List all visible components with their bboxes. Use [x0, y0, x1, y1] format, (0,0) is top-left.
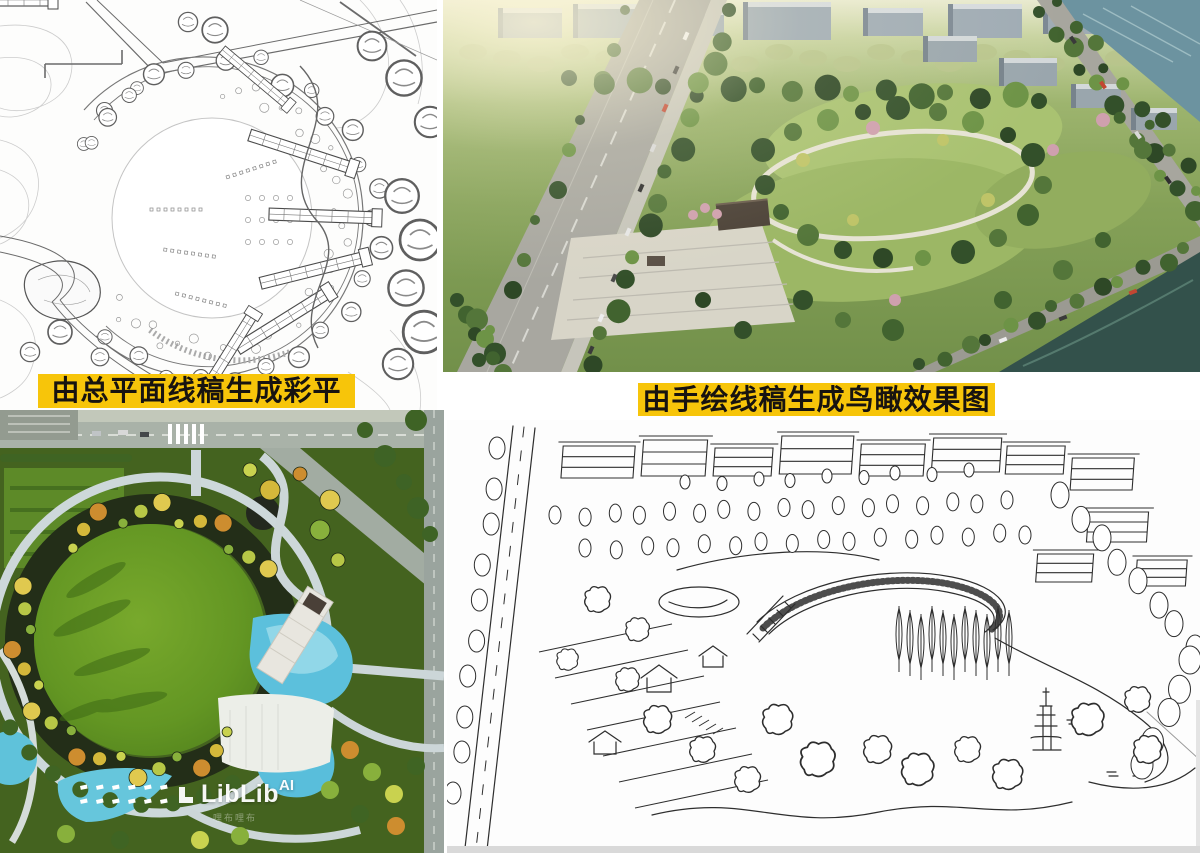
panel-hand-drawn-sketch	[447, 420, 1200, 853]
watermark-brand: LibLibAI	[201, 780, 294, 809]
right-edge-strip	[1196, 700, 1200, 846]
caption-banner-plan-to-color: 由总平面线稿生成彩平	[38, 374, 355, 408]
sun-haze	[443, 0, 1200, 372]
watermark-subtext: 哩布哩布	[213, 811, 257, 824]
collage-canvas: 由总平面线稿生成彩平 由手绘线稿生成鸟瞰效果图	[0, 0, 1200, 853]
hand-sketch	[447, 420, 1200, 853]
bottom-strip	[447, 846, 1200, 853]
liblib-watermark: LibLibAI 哩布哩布	[150, 780, 320, 824]
caption-banner-sketch-to-render: 由手绘线稿生成鸟瞰效果图	[638, 383, 995, 416]
panel-color-site-plan-render: LibLibAI 哩布哩布	[0, 410, 444, 853]
panel-aerial-birdseye-render	[443, 0, 1200, 372]
panel-master-plan-line-draft	[0, 0, 437, 410]
aerial-render	[443, 0, 1200, 372]
liblib-logo-icon	[176, 785, 196, 805]
plan-line-drawing	[0, 0, 437, 410]
